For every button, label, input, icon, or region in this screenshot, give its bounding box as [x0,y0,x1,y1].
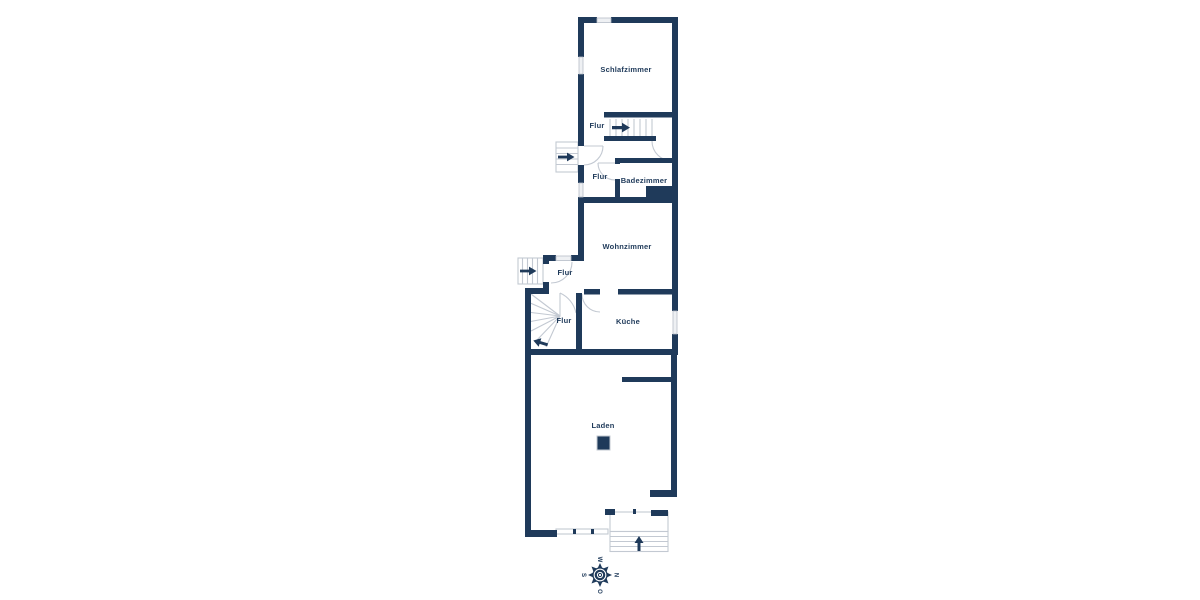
shopfront-window [556,529,608,534]
room-label-flur-upper: Flur [590,121,605,130]
floorplan-drawing: Schlafzimmer Flur Flur Badezimmer Wohnzi… [0,0,1200,600]
floorplan-canvas: Schlafzimmer Flur Flur Badezimmer Wohnzi… [0,0,1200,600]
window [556,256,571,261]
room-label-badezimmer: Badezimmer [621,176,668,185]
room-label-flur-bad: Flur [593,172,608,181]
stair-arrow-up-interior [612,123,630,133]
stair-arrow-winder [532,336,549,349]
entry-door-upper [584,146,603,165]
window [673,311,677,334]
room-label-laden: Laden [591,421,614,430]
exterior-walls [525,17,678,537]
compass-label-top: W [596,557,602,563]
window [597,18,611,23]
room-label-kueche: Küche [616,317,640,326]
column-pillar [597,436,610,450]
compass-label-right: N [613,573,619,577]
interior-walls [576,112,672,516]
room-label-flur-entry: Flur [558,268,573,277]
compass-rose-icon: W N O S [580,557,619,595]
room-label-wohnzimmer: Wohnzimmer [603,242,652,251]
compass-label-left: S [580,573,586,577]
compass-label-bottom: O [596,589,602,594]
window [579,183,583,197]
window [579,57,583,74]
room-label-schlafzimmer: Schlafzimmer [600,65,651,74]
kitchen-door-arc [582,294,600,312]
room-label-flur-stairs: Flur [557,316,572,325]
